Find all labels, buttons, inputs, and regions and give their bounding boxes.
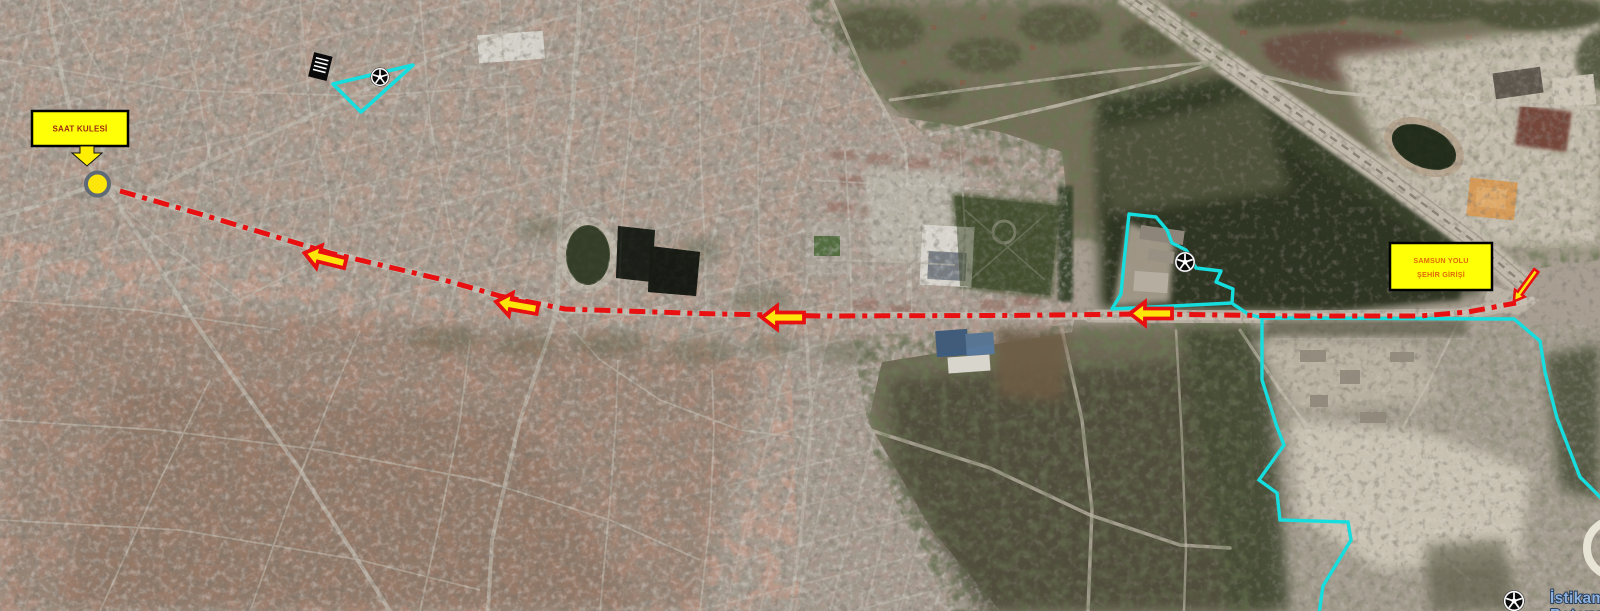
svg-text:SAMSUN YOLU: SAMSUN YOLU xyxy=(1413,256,1468,265)
svg-text:SAAT KULESİ: SAAT KULESİ xyxy=(53,125,108,134)
svg-text:İstikamet: İstikamet xyxy=(1550,590,1600,607)
svg-text:Batarya: Batarya xyxy=(1550,607,1600,611)
svg-text:ŞEHİR GİRİŞİ: ŞEHİR GİRİŞİ xyxy=(1417,270,1465,279)
